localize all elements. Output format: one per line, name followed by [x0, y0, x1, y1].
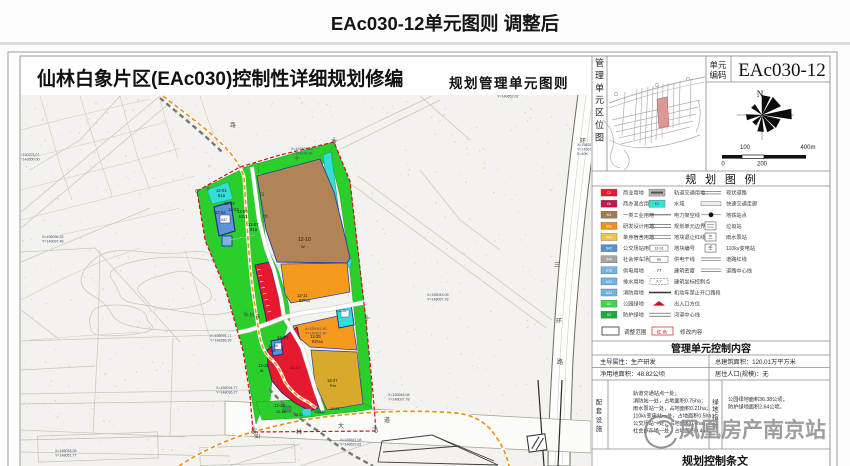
svg-text:轨道交通站点一处；: 轨道交通站点一处； — [633, 389, 680, 397]
svg-text:61a: 61a — [250, 227, 258, 232]
svg-text:路: 路 — [230, 121, 236, 129]
svg-text:现状道路: 现状道路 — [726, 189, 748, 197]
svg-text:12-21: 12-21 — [294, 413, 303, 417]
svg-text:防护绿地: 防护绿地 — [623, 311, 644, 319]
svg-text:居住人口(规模)：无: 居住人口(规模)：无 — [715, 370, 769, 378]
svg-text:Rnl: Rnl — [606, 235, 611, 239]
svg-text:调整范围: 调整范围 — [624, 328, 647, 336]
svg-text:Y=148286.39: Y=148286.39 — [210, 338, 231, 342]
svg-text:壬: 壬 — [708, 245, 713, 251]
svg-text:雨水泵站一处，占地面积0.21ha；: 雨水泵站一处，占地面积0.21ha； — [633, 404, 711, 412]
svg-text:X=155018.05: X=155018.05 — [55, 449, 76, 453]
svg-text:规划管理单元图则: 规划管理单元图则 — [449, 75, 569, 91]
svg-text:Y=148037.78: Y=148037.78 — [388, 397, 409, 401]
svg-text:象: 象 — [264, 213, 269, 219]
svg-text:供电干线: 供电干线 — [674, 255, 695, 263]
svg-text:仙: 仙 — [254, 432, 260, 440]
svg-text:红 色: 红 色 — [657, 329, 668, 335]
svg-text:建筑坐标控制点: 建筑坐标控制点 — [674, 277, 710, 285]
svg-text:三: 三 — [554, 262, 560, 269]
svg-text:垃圾站: 垃圾站 — [726, 222, 742, 230]
svg-text:EAc030-12: EAc030-12 — [738, 60, 826, 81]
svg-text:环: 环 — [556, 318, 562, 325]
svg-text:建筑密度: 建筑密度 — [674, 266, 695, 274]
svg-text:8a: 8a — [657, 258, 661, 262]
svg-text:12-20: 12-20 — [277, 335, 288, 340]
svg-text:单身宿舍用地: 单身宿舍用地 — [623, 233, 654, 241]
svg-text:U21: U21 — [606, 280, 612, 284]
svg-text:管: 管 — [595, 57, 604, 68]
svg-text:85a: 85a — [606, 224, 612, 228]
svg-text:C2: C2 — [607, 191, 611, 195]
svg-text:林: 林 — [296, 428, 302, 436]
svg-text:S42: S42 — [606, 247, 612, 251]
svg-text:X=155043.09: X=155043.09 — [427, 293, 448, 297]
svg-text:研发设计用地: 研发设计用地 — [623, 222, 654, 230]
svg-text:X=155034.77: X=155034.77 — [216, 386, 237, 390]
svg-text:地: 地 — [712, 405, 719, 414]
svg-text:大: 大 — [338, 422, 344, 430]
svg-text:道路红线: 道路红线 — [726, 255, 747, 263]
svg-text:Y=149652.02: Y=149652.02 — [497, 94, 518, 98]
svg-text:管理单元控制内容: 管理单元控制内容 — [671, 342, 751, 355]
svg-text:12-04: 12-04 — [215, 210, 226, 215]
svg-text:商业用地: 商业用地 — [623, 189, 644, 197]
svg-text:修改内容: 修改内容 — [680, 328, 703, 336]
svg-text:U12: U12 — [606, 269, 612, 273]
svg-text:N: N — [757, 89, 764, 99]
svg-text:水域: 水域 — [674, 200, 684, 208]
svg-text:12-22: 12-22 — [314, 410, 323, 414]
svg-text:林: 林 — [249, 312, 254, 319]
svg-text:绿: 绿 — [712, 397, 719, 406]
svg-text:W: W — [301, 244, 305, 249]
svg-text:电力架空线: 电力架空线 — [674, 211, 700, 219]
svg-text:位: 位 — [595, 119, 604, 130]
svg-text:路: 路 — [557, 358, 564, 366]
svg-text:#37: #37 — [221, 218, 227, 222]
svg-text:环: 环 — [580, 138, 586, 145]
svg-text:图: 图 — [595, 132, 604, 142]
svg-text:S44: S44 — [606, 258, 612, 262]
svg-text:仙: 仙 — [243, 311, 248, 318]
svg-text:12-10: 12-10 — [298, 237, 311, 243]
svg-text:Y=148057.78: Y=148057.78 — [427, 297, 448, 301]
svg-text:12-01: 12-01 — [654, 246, 663, 250]
svg-text:消防用地: 消防用地 — [623, 289, 644, 297]
svg-text:理: 理 — [595, 70, 604, 80]
svg-text:地块编号: 地块编号 — [674, 244, 695, 252]
svg-text:供电用地: 供电用地 — [623, 266, 644, 274]
svg-text:配: 配 — [596, 398, 603, 406]
svg-text:12-19: 12-19 — [268, 344, 278, 348]
svg-text:X=155091.77: X=155091.77 — [210, 334, 231, 338]
svg-text:规划单元边界: 规划单元边界 — [674, 222, 705, 230]
svg-text:Cb: Cb — [607, 202, 611, 206]
svg-text:82%a: 82%a — [312, 339, 323, 344]
svg-text:6L: 6L — [260, 369, 264, 373]
svg-text:E=40K: E=40K — [577, 152, 588, 156]
svg-text:排水用地: 排水用地 — [623, 277, 644, 285]
svg-text:地铁站点: 地铁站点 — [726, 211, 747, 219]
svg-text:Y=149301.50: Y=149301.50 — [305, 331, 326, 335]
svg-text:X=155081.45: X=155081.45 — [305, 327, 326, 331]
svg-text:X=155641.08: X=155641.08 — [340, 438, 361, 442]
svg-text:12-23: 12-23 — [330, 407, 339, 411]
svg-text:Y=148036.27: Y=148036.27 — [216, 390, 237, 394]
svg-text:公园绿地面积36.38公顷；: 公园绿地面积36.38公顷； — [728, 395, 788, 403]
svg-text:道路中心线: 道路中心线 — [726, 266, 752, 274]
svg-text:400m: 400m — [800, 145, 815, 151]
svg-text:消防站一处，占地面积0.75ha；: 消防站一处，占地面积0.75ha； — [633, 397, 706, 405]
svg-text:白: 白 — [260, 191, 265, 198]
svg-text:12-16: 12-16 — [276, 410, 286, 414]
svg-text:出入口方位: 出入口方位 — [674, 300, 700, 308]
svg-text:编码: 编码 — [709, 70, 726, 80]
svg-text:G1: G1 — [607, 302, 612, 306]
svg-text:三: 三 — [708, 235, 713, 240]
svg-text:防护绿地面积2.64公顷。: 防护绿地面积2.64公顷。 — [728, 403, 785, 411]
svg-text:X=153487.55: X=153487.55 — [291, 147, 312, 151]
svg-text:雨水泵站: 雨水泵站 — [726, 233, 747, 241]
svg-text:12-27: 12-27 — [327, 378, 338, 383]
svg-text:凤凰房产南京站: 凤凰房产南京站 — [679, 418, 826, 442]
svg-text:规划控制条文: 规划控制条文 — [682, 454, 749, 466]
svg-text:单: 单 — [595, 82, 604, 93]
svg-text:施: 施 — [596, 424, 603, 433]
svg-text:12-26: 12-26 — [337, 309, 346, 313]
svg-text:M1: M1 — [607, 213, 612, 217]
svg-text:道: 道 — [384, 416, 390, 424]
svg-text:公交场站用地: 公交场站用地 — [623, 244, 654, 252]
svg-text:U31: U31 — [606, 291, 612, 295]
svg-text:净用地面积：48.82公顷: 净用地面积：48.82公顷 — [600, 370, 665, 378]
svg-text:12-02: 12-02 — [224, 201, 235, 206]
svg-text:Y=149097.46: Y=149097.46 — [42, 239, 63, 243]
svg-text:总建筑面积：120.01万平方米: 总建筑面积：120.01万平方米 — [715, 358, 796, 366]
svg-text:规 划 图 例: 规 划 图 例 — [685, 172, 758, 186]
svg-text:100: 100 — [740, 145, 751, 151]
svg-text:82%a: 82%a — [299, 298, 310, 303]
svg-text:61a: 61a — [218, 193, 226, 198]
svg-text:110kv变电站: 110kv变电站 — [726, 244, 755, 252]
svg-text:主导属性：生产研发: 主导属性：生产研发 — [600, 358, 656, 366]
svg-text:X.Y: X.Y — [656, 280, 662, 284]
svg-text:设: 设 — [596, 415, 603, 424]
svg-text:机动车禁止开口路段: 机动车禁止开口路段 — [674, 289, 721, 297]
svg-text:元: 元 — [595, 95, 604, 105]
svg-text:地块退让红线: 地块退让红线 — [674, 233, 705, 241]
svg-text:区: 区 — [595, 108, 604, 118]
svg-text:单元: 单元 — [709, 60, 727, 70]
svg-text:X=155096.32: X=155096.32 — [42, 235, 63, 239]
svg-text:Y=149194.36: Y=149194.36 — [291, 151, 312, 155]
svg-text:快速交通走廊: 快速交通走廊 — [726, 200, 757, 208]
svg-text:. 77 .: . 77 . — [654, 268, 664, 273]
svg-text:Y=148623.81: Y=148623.81 — [340, 442, 361, 446]
svg-text:12-17: 12-17 — [290, 365, 301, 370]
svg-text:X=155644.08: X=155644.08 — [388, 393, 409, 397]
svg-text:Y=148051.77: Y=148051.77 — [55, 453, 76, 457]
svg-text:12-18: 12-18 — [258, 363, 269, 368]
svg-text:E1: E1 — [655, 202, 659, 206]
svg-text:EAc030-12单元图则 调整后: EAc030-12单元图则 调整后 — [331, 13, 559, 34]
svg-text:东: 东 — [255, 313, 260, 320]
svg-text:公园绿地: 公园绿地 — [623, 300, 644, 308]
svg-text:KG1: KG1 — [239, 214, 248, 219]
svg-text:Rm: Rm — [330, 384, 336, 388]
svg-text:轨道交通用地: 轨道交通用地 — [674, 189, 705, 197]
svg-text:12-15: 12-15 — [274, 403, 285, 408]
svg-text:G2: G2 — [607, 313, 612, 317]
svg-text:941: 941 — [270, 349, 276, 353]
svg-text:河道中心线: 河道中心线 — [674, 311, 700, 319]
svg-text:仙林白象片区(EAc030)控制性详细规划修编: 仙林白象片区(EAc030)控制性详细规划修编 — [37, 67, 403, 90]
svg-text:200: 200 — [757, 162, 768, 168]
svg-text:套: 套 — [596, 406, 603, 415]
